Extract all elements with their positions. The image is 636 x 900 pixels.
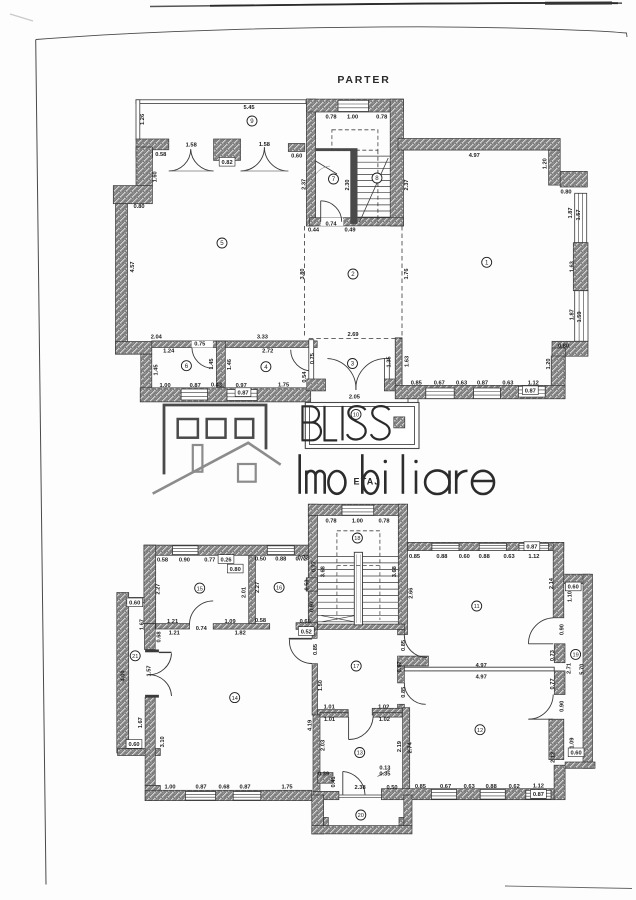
svg-text:0.78: 0.78 — [376, 115, 387, 121]
svg-text:2.74: 2.74 — [408, 741, 414, 753]
svg-text:0.58: 0.58 — [155, 152, 166, 158]
svg-text:0.52: 0.52 — [301, 629, 312, 635]
svg-text:0.50: 0.50 — [386, 785, 397, 791]
svg-text:0.62: 0.62 — [509, 784, 520, 790]
svg-text:1.12: 1.12 — [528, 380, 539, 386]
svg-text:0.35: 0.35 — [379, 772, 390, 778]
svg-text:0.26: 0.26 — [220, 557, 231, 563]
svg-text:0.77: 0.77 — [311, 561, 317, 572]
svg-text:2.69: 2.69 — [347, 332, 358, 338]
svg-text:20: 20 — [358, 813, 364, 819]
svg-text:0.85: 0.85 — [415, 784, 426, 790]
svg-text:1.67: 1.67 — [140, 619, 146, 630]
svg-text:0.44: 0.44 — [308, 228, 320, 234]
svg-text:4.57: 4.57 — [130, 261, 136, 272]
svg-text:1.45: 1.45 — [209, 358, 215, 369]
svg-text:3.33: 3.33 — [257, 335, 268, 341]
svg-text:0.80: 0.80 — [558, 343, 569, 349]
svg-text:1.01: 1.01 — [324, 705, 335, 711]
svg-text:10: 10 — [353, 413, 359, 419]
svg-text:1.02: 1.02 — [378, 705, 389, 711]
svg-text:6: 6 — [185, 363, 189, 370]
svg-text:0.68: 0.68 — [157, 631, 163, 642]
svg-text:1.45: 1.45 — [153, 364, 159, 375]
svg-text:0.87: 0.87 — [190, 383, 201, 389]
svg-text:0.87: 0.87 — [477, 380, 488, 386]
svg-text:0.60: 0.60 — [568, 585, 579, 591]
svg-text:2.37: 2.37 — [404, 179, 410, 190]
svg-text:1.20: 1.20 — [546, 358, 552, 369]
svg-text:0.60: 0.60 — [129, 601, 140, 607]
svg-text:0.80: 0.80 — [560, 190, 571, 196]
svg-text:1.63: 1.63 — [570, 261, 576, 272]
svg-text:1.46: 1.46 — [227, 359, 233, 370]
svg-text:1.57: 1.57 — [147, 665, 153, 676]
svg-text:0.54: 0.54 — [302, 371, 308, 383]
svg-text:0.97: 0.97 — [309, 601, 315, 612]
svg-text:19: 19 — [572, 653, 578, 659]
svg-text:1.58: 1.58 — [186, 143, 197, 149]
svg-text:0.78: 0.78 — [325, 115, 336, 121]
svg-text:3.80: 3.80 — [300, 268, 306, 279]
svg-text:1.87: 1.87 — [568, 207, 574, 218]
svg-text:0.43: 0.43 — [211, 382, 222, 388]
svg-text:1.12: 1.12 — [533, 783, 544, 789]
svg-text:0.85: 0.85 — [313, 644, 319, 655]
svg-text:0.88: 0.88 — [479, 554, 490, 560]
svg-text:15: 15 — [197, 586, 203, 592]
svg-text:1.00: 1.00 — [352, 519, 363, 525]
svg-text:0.60: 0.60 — [459, 554, 470, 560]
svg-text:0.50: 0.50 — [255, 557, 266, 563]
svg-text:0.85: 0.85 — [411, 380, 422, 386]
svg-text:0.63: 0.63 — [502, 380, 513, 386]
svg-text:0.82: 0.82 — [222, 160, 233, 166]
svg-text:1.76: 1.76 — [404, 268, 410, 279]
svg-text:0.13: 0.13 — [379, 765, 390, 771]
svg-text:0.87: 0.87 — [239, 785, 250, 791]
svg-text:1.20: 1.20 — [543, 158, 549, 169]
svg-text:0.87: 0.87 — [237, 390, 248, 396]
svg-text:11: 11 — [474, 604, 480, 610]
svg-text:0.73: 0.73 — [550, 650, 556, 661]
svg-text:0.88: 0.88 — [486, 784, 497, 790]
svg-text:5.45: 5.45 — [243, 105, 254, 111]
svg-text:0.85: 0.85 — [401, 640, 407, 651]
svg-text:17: 17 — [353, 664, 359, 670]
svg-text:0.74: 0.74 — [325, 222, 337, 228]
svg-text:0.87: 0.87 — [195, 785, 206, 791]
svg-text:1.50: 1.50 — [318, 680, 324, 691]
svg-text:14: 14 — [232, 696, 238, 702]
svg-text:0.77: 0.77 — [204, 557, 215, 563]
svg-text:1.67: 1.67 — [138, 717, 144, 728]
svg-text:1.01: 1.01 — [324, 717, 335, 723]
svg-text:4.97: 4.97 — [476, 675, 487, 681]
svg-text:2.04: 2.04 — [151, 335, 163, 341]
svg-text:12: 12 — [477, 728, 483, 734]
svg-text:1.57: 1.57 — [576, 209, 582, 220]
svg-text:21: 21 — [132, 654, 138, 660]
svg-text:2.12: 2.12 — [551, 752, 557, 763]
svg-text:0.72: 0.72 — [296, 557, 307, 563]
svg-text:0.75: 0.75 — [310, 353, 316, 364]
svg-text:0.58: 0.58 — [157, 557, 168, 563]
svg-text:0.80: 0.80 — [133, 204, 144, 210]
svg-text:0.49: 0.49 — [344, 228, 355, 234]
svg-text:0.39: 0.39 — [318, 772, 329, 778]
svg-text:0.68: 0.68 — [218, 785, 229, 791]
svg-text:1.10: 1.10 — [568, 591, 574, 602]
svg-text:0.85: 0.85 — [409, 554, 420, 560]
svg-text:0.58: 0.58 — [255, 618, 266, 624]
svg-text:2.01: 2.01 — [242, 587, 248, 598]
svg-text:0.63: 0.63 — [456, 380, 467, 386]
svg-text:1.75: 1.75 — [278, 382, 289, 388]
svg-text:0.90: 0.90 — [179, 557, 190, 563]
svg-text:0.53: 0.53 — [304, 579, 310, 590]
svg-text:2.30: 2.30 — [345, 179, 351, 190]
svg-text:1.87: 1.87 — [570, 309, 576, 320]
svg-text:5.70: 5.70 — [579, 664, 585, 675]
svg-text:3.68: 3.68 — [321, 566, 327, 577]
svg-text:0.80: 0.80 — [230, 567, 241, 573]
svg-text:0.90: 0.90 — [559, 624, 565, 635]
svg-text:4.97: 4.97 — [469, 153, 480, 159]
svg-text:4.00: 4.00 — [121, 670, 127, 681]
svg-text:0.87: 0.87 — [533, 792, 544, 798]
svg-text:0.67: 0.67 — [434, 380, 445, 386]
svg-text:4.97: 4.97 — [476, 663, 487, 669]
svg-text:1.82: 1.82 — [235, 631, 246, 637]
svg-text:18: 18 — [354, 536, 360, 542]
svg-text:1.63: 1.63 — [405, 356, 411, 367]
svg-text:1.24: 1.24 — [163, 349, 175, 355]
svg-text:0.65: 0.65 — [300, 619, 311, 625]
svg-text:1.60: 1.60 — [153, 171, 159, 182]
svg-text:1.02: 1.02 — [379, 717, 390, 723]
svg-text:3.10: 3.10 — [160, 736, 166, 747]
svg-text:2.14: 2.14 — [549, 577, 555, 589]
svg-text:0.67: 0.67 — [397, 661, 403, 672]
svg-text:1.00: 1.00 — [164, 785, 175, 791]
svg-text:0.41: 0.41 — [331, 776, 337, 787]
svg-text:2.38: 2.38 — [355, 785, 366, 791]
svg-text:1.09: 1.09 — [225, 619, 236, 625]
svg-text:0.67: 0.67 — [440, 784, 451, 790]
svg-text:13: 13 — [357, 751, 363, 757]
svg-text:0.90: 0.90 — [559, 701, 565, 712]
svg-text:1.75: 1.75 — [281, 784, 292, 790]
svg-text:0.60: 0.60 — [291, 154, 302, 160]
svg-text:0.63: 0.63 — [504, 554, 515, 560]
svg-text:1.58: 1.58 — [259, 142, 270, 148]
svg-text:0.78: 0.78 — [378, 519, 389, 525]
svg-text:2.27: 2.27 — [255, 582, 261, 593]
svg-text:0.63: 0.63 — [464, 784, 475, 790]
svg-text:4: 4 — [264, 364, 268, 371]
svg-text:1.00: 1.00 — [160, 383, 171, 389]
svg-text:2.72: 2.72 — [262, 349, 273, 355]
svg-text:2.37: 2.37 — [301, 179, 307, 190]
svg-text:0.87: 0.87 — [526, 544, 537, 550]
svg-text:1.59: 1.59 — [577, 311, 583, 322]
svg-text:0.60: 0.60 — [128, 742, 139, 748]
svg-text:0.75: 0.75 — [194, 341, 205, 347]
svg-text:0.88: 0.88 — [275, 557, 286, 563]
svg-text:0.85: 0.85 — [401, 687, 407, 698]
svg-text:1.09: 1.09 — [569, 738, 575, 749]
svg-text:3.68: 3.68 — [392, 566, 398, 577]
svg-text:16: 16 — [276, 586, 282, 592]
svg-text:2.66: 2.66 — [409, 588, 415, 599]
svg-text:0.87: 0.87 — [525, 389, 536, 395]
svg-text:1.21: 1.21 — [169, 631, 180, 637]
svg-text:PARTER: PARTER — [337, 74, 390, 86]
svg-text:2.19: 2.19 — [397, 741, 403, 752]
svg-text:0.77: 0.77 — [550, 678, 556, 689]
svg-text:2.05: 2.05 — [349, 395, 360, 401]
svg-text:1: 1 — [485, 260, 489, 267]
svg-text:0.60: 0.60 — [571, 751, 582, 757]
svg-text:0.88: 0.88 — [436, 554, 447, 560]
svg-text:1.21: 1.21 — [167, 619, 178, 625]
svg-text:2.27: 2.27 — [155, 584, 161, 595]
svg-text:2.03: 2.03 — [320, 740, 326, 751]
svg-text:1.35: 1.35 — [386, 356, 392, 367]
svg-text:0.74: 0.74 — [196, 626, 208, 632]
svg-text:4.19: 4.19 — [307, 720, 313, 731]
svg-text:1.12: 1.12 — [528, 554, 539, 560]
svg-text:2.71: 2.71 — [567, 663, 573, 674]
svg-text:1.00: 1.00 — [347, 115, 358, 121]
svg-text:0.78: 0.78 — [325, 519, 336, 525]
svg-text:1.26: 1.26 — [140, 114, 146, 125]
